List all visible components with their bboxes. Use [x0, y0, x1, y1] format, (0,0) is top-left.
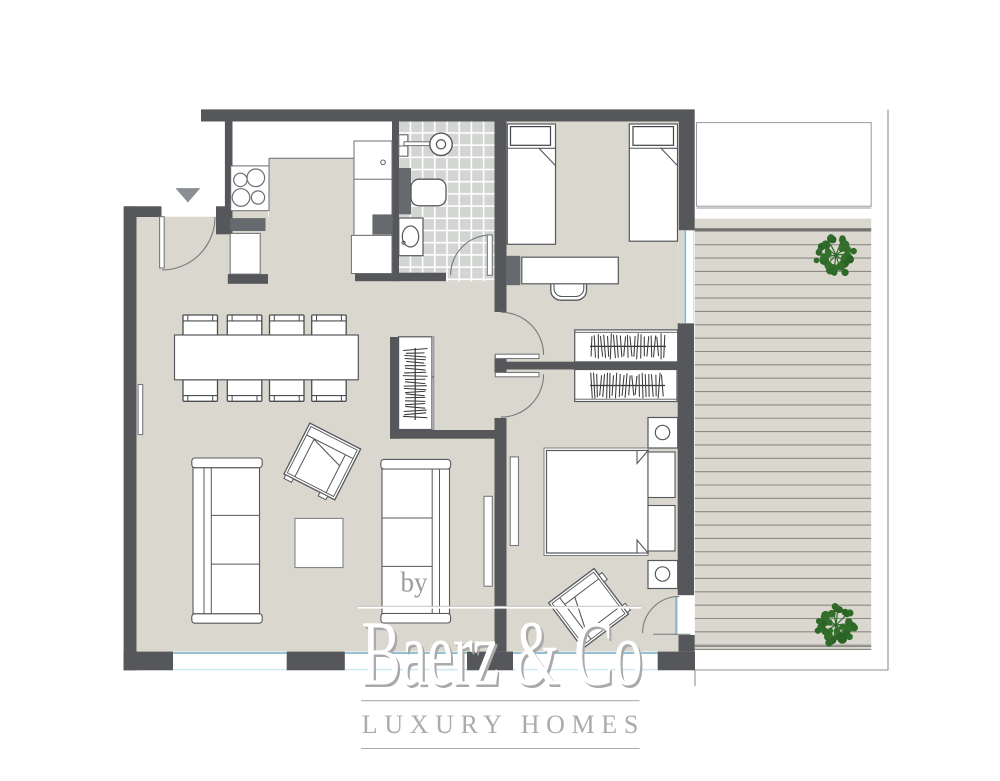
svg-text:Baerz & Co: Baerz & Co: [362, 602, 643, 705]
svg-text:by: by: [401, 567, 428, 599]
